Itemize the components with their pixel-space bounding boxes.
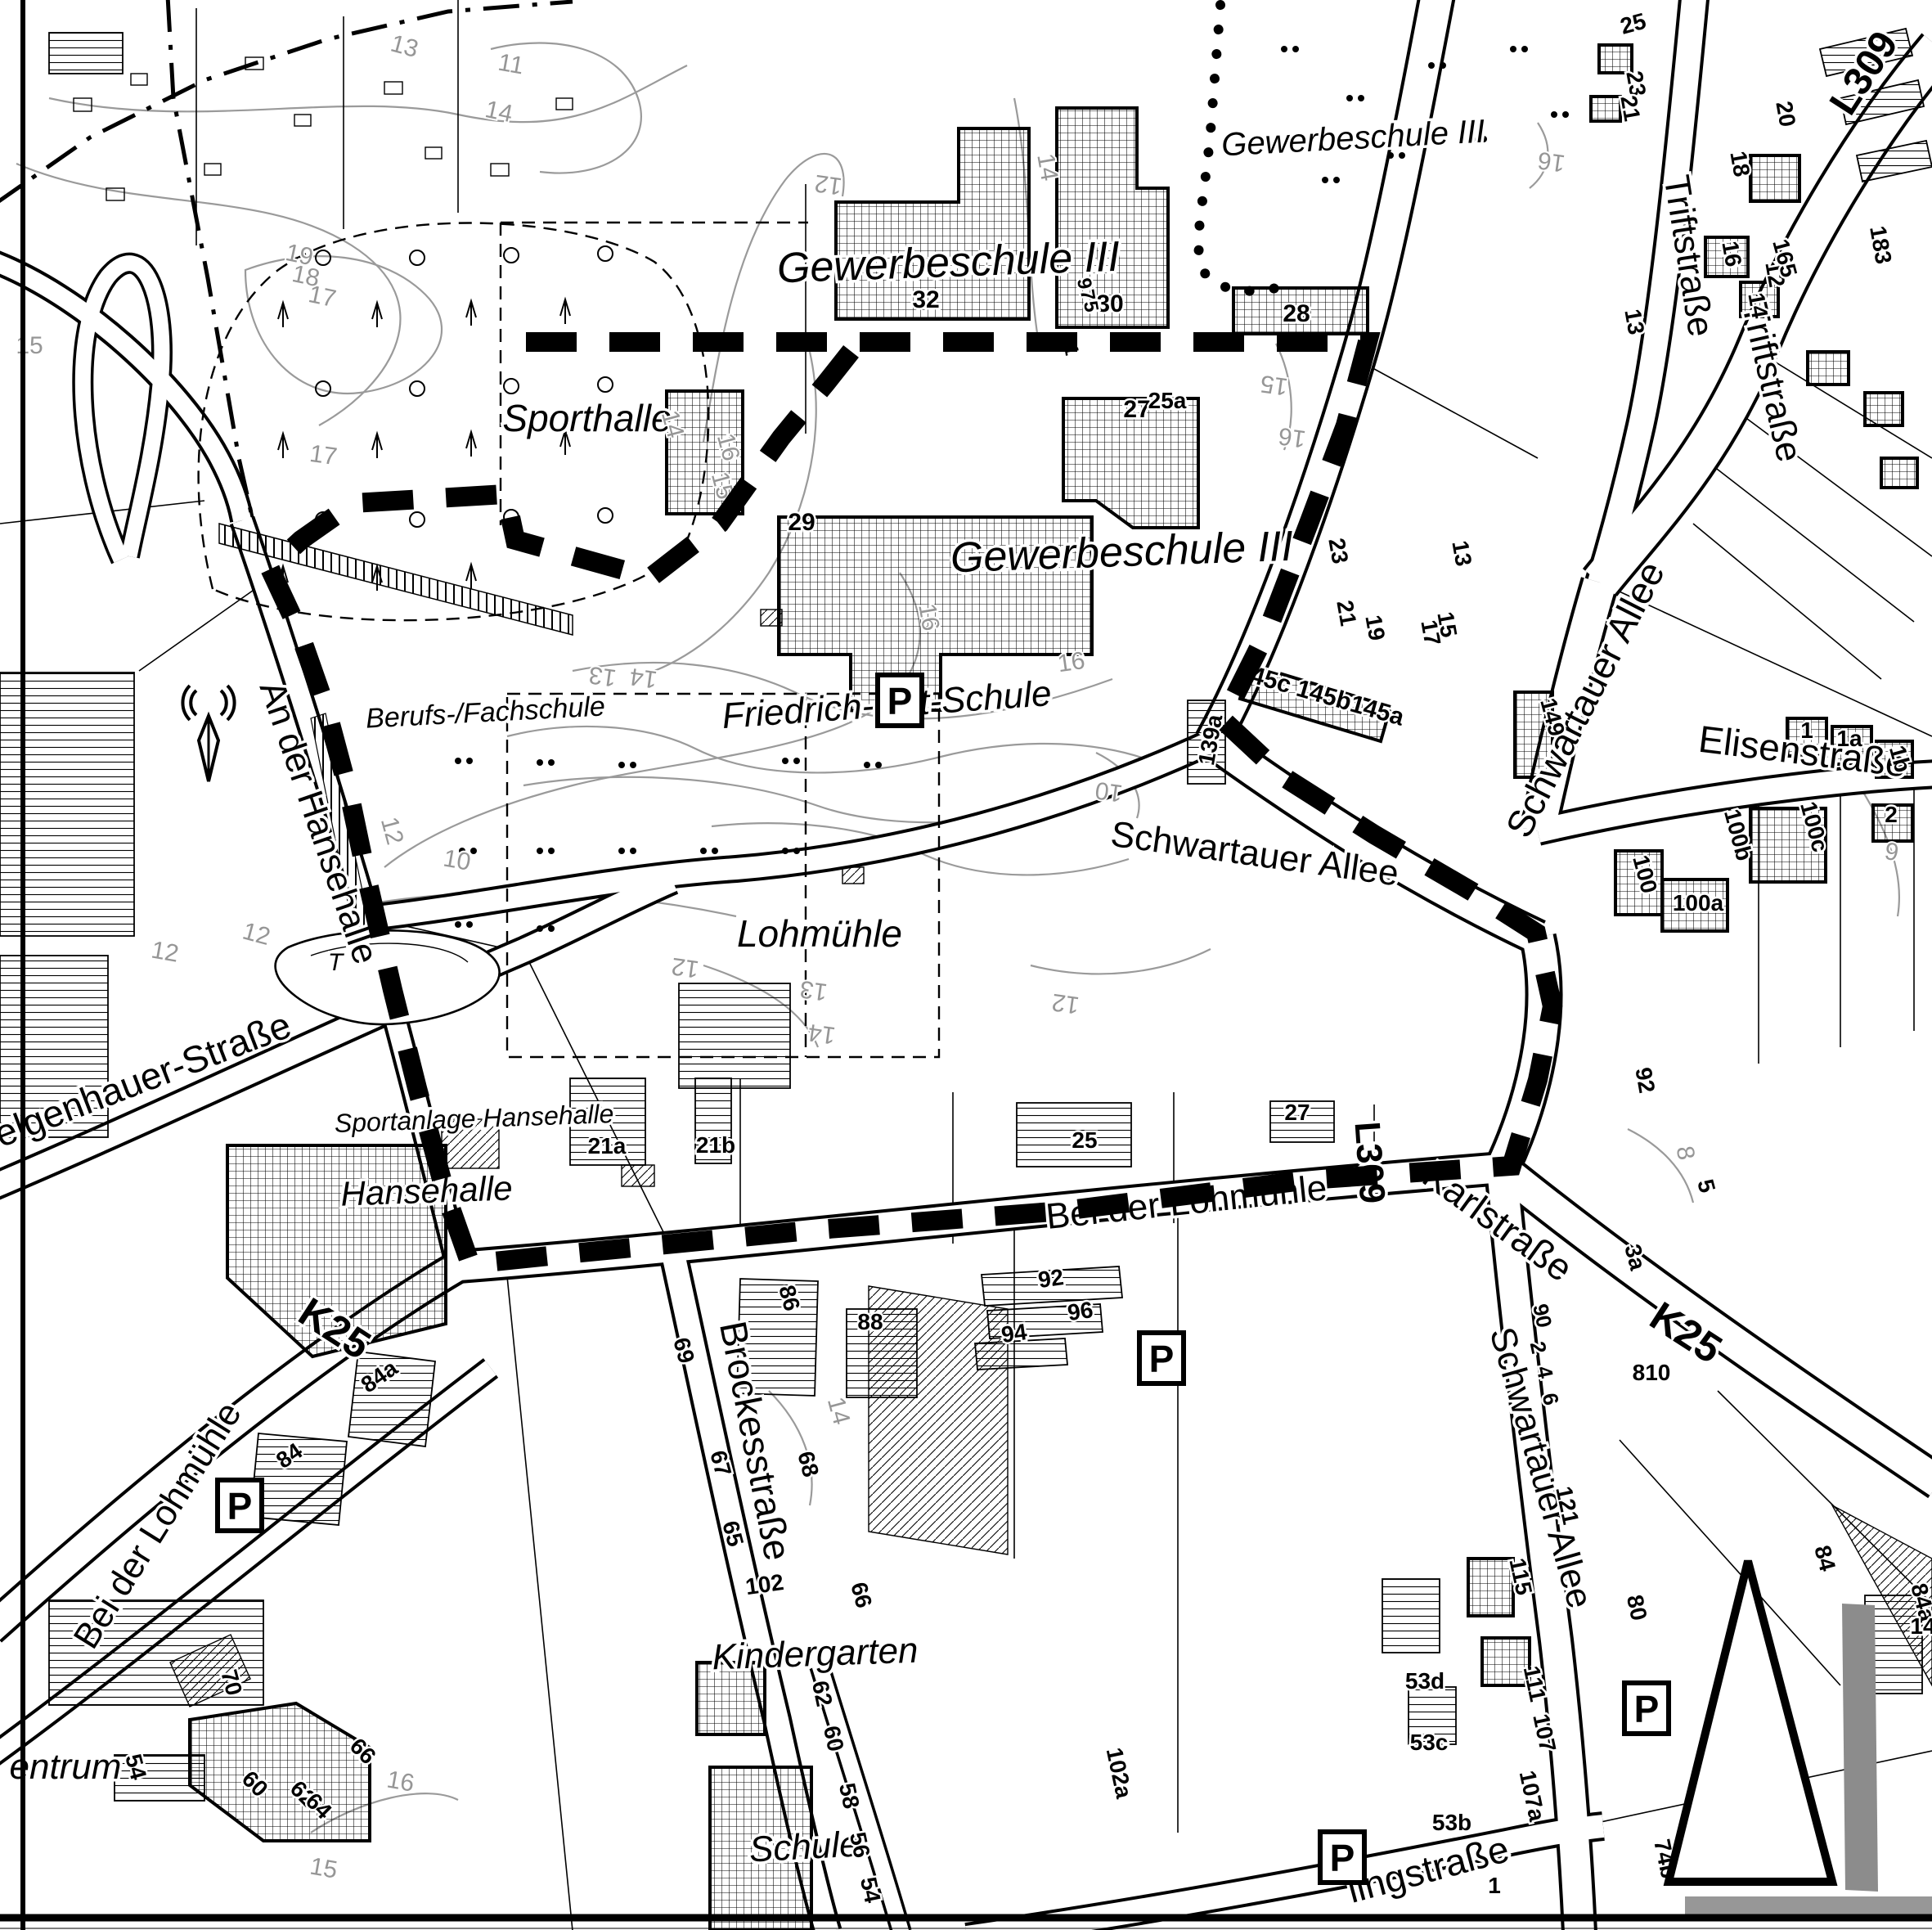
n19-sa-label: 19 [1360,613,1390,642]
n27-blm-label: 27 [1284,1100,1310,1125]
schule-label: Schule [748,1824,860,1870]
n100a-label: 100a [1673,890,1724,916]
n92-label: 92 [1036,1264,1065,1293]
n88-label: 88 [857,1309,883,1334]
n23-sa-label: 23 [1323,536,1353,565]
l309-s-label: L309 [1347,1120,1393,1204]
c15-w-label: 15 [16,332,43,359]
n13-tr-label: 13 [1620,307,1649,336]
c13-lo-label: 13 [798,975,829,1005]
parking-icon: P [1320,1832,1364,1883]
parking-letter: P [1330,1837,1355,1879]
n53c-label: 53c [1410,1730,1449,1755]
c15-ne-label: 15 [1259,370,1290,400]
n92-e-label: 92 [1630,1065,1660,1095]
n58-s-label: 58 [834,1781,865,1811]
n1a-el-label: 1a [1836,726,1862,751]
hansehalle-label: Hansehalle [340,1168,514,1212]
c12-nw-label: 12 [813,169,844,200]
n810-label: 810 [1633,1360,1671,1385]
n21-tr-label: 21 [1615,93,1645,123]
n27-gw-label: 27 [1123,396,1150,423]
n96-label: 96 [1066,1297,1094,1325]
n102-label: 102 [744,1569,785,1599]
c17b-label: 17 [308,440,339,470]
n20-label: 20 [1771,99,1800,128]
n90-label: 90 [1528,1302,1557,1330]
c14-lo-label: 14 [806,1019,838,1049]
c13-fl-label: 13 [587,661,618,691]
lohmuehle-label: Lohmühle [737,912,902,955]
n14-tr-label: 14 [1743,290,1772,320]
n56-s-label: 56 [845,1830,875,1860]
n21a-label: 21a [588,1133,627,1158]
n2-el-label: 2 [1885,802,1898,827]
c14-fl-label: 14 [628,663,659,693]
n53d-label: 53d [1405,1668,1445,1694]
n62-s-label: 62 [807,1679,838,1709]
c16-ne-label: 16 [1277,422,1308,452]
n18-label: 18 [1725,149,1755,178]
parking-icon: P [1139,1333,1184,1383]
c12-lo2-label: 12 [1050,988,1081,1019]
parking-icon: P [1624,1683,1669,1734]
n21-sa-label: 21 [1332,598,1361,628]
c10-fl-label: 10 [1094,776,1125,807]
parking-letter: P [887,680,913,722]
n32-label: 32 [912,286,939,313]
n28-label: 28 [1283,300,1310,327]
n21b-label: 21b [696,1132,735,1158]
parking-letter: P [1149,1338,1175,1380]
parking-letter: P [1634,1688,1660,1730]
c10-p-label: 10 [441,844,473,875]
sporthalle-label: Sporthalle [502,397,672,439]
n80-label: 80 [1622,1593,1652,1623]
c17-label: 17 [306,281,339,313]
n25a-label: 25a [1148,388,1187,413]
kindergarten-label: Kindergarten [712,1631,919,1678]
c16-z-label: 16 [384,1766,416,1797]
pond-t-label: T [328,949,345,976]
n29-label: 29 [788,509,815,536]
n1-el-label: 1 [1800,718,1813,743]
c11-n-label: 11 [496,49,525,80]
c12-lo-label: 12 [670,952,701,983]
c15-z-label: 15 [308,1852,339,1883]
n25-blm-label: 25 [1072,1127,1097,1153]
n53b-label: 53b [1432,1810,1471,1835]
parking-letter: P [227,1485,253,1527]
c14-gw-label: 14 [1031,151,1063,183]
n16-tr-label: 16 [1717,239,1746,268]
city-plan-map: Gewerbeschule IIIGewerbeschule IIIGewerb… [0,0,1932,1930]
zentrum-fragment-label: entrum [10,1747,122,1787]
n13-sa-label: 13 [1447,538,1476,568]
c16-fl-label: 16 [1056,647,1087,677]
parking-icon: P [218,1480,262,1531]
n60-s-label: 60 [819,1724,849,1754]
map-canvas: Gewerbeschule IIIGewerbeschule IIIGewerb… [0,0,1932,1930]
c16-el-label: 16 [1536,146,1567,177]
c14-n-label: 14 [483,96,515,128]
n15-sa-label: 15 [1432,610,1462,639]
n14-se-label: 14 [1910,1613,1932,1639]
parking-icon: P [878,675,922,726]
n94-label: 94 [1000,1319,1029,1347]
n1-ling-label: 1 [1488,1873,1501,1898]
c16-gw2-label: 16 [913,601,944,633]
c12-l-label: 12 [149,936,181,967]
